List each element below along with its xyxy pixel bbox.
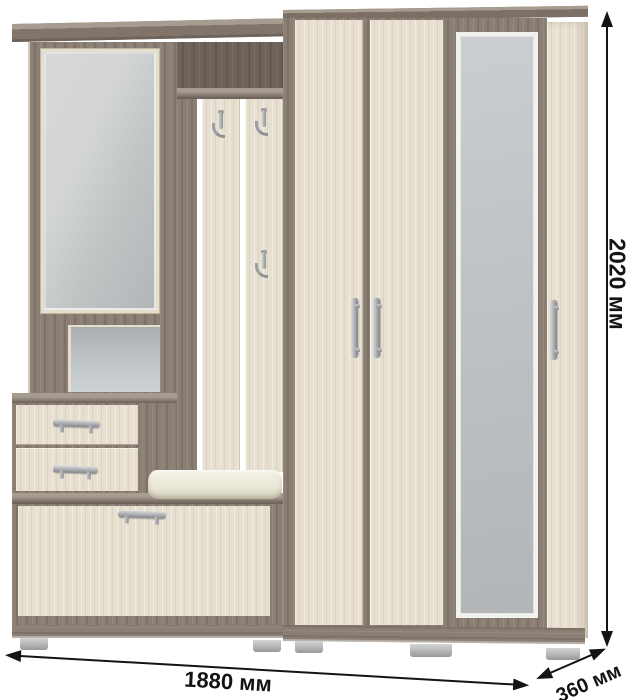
drawer-handle-top	[53, 419, 100, 428]
niche-mirror	[68, 325, 160, 392]
coat-rack-slat-left	[202, 99, 240, 472]
hook-curl	[255, 121, 268, 136]
cornice-shelf	[12, 18, 283, 42]
cabinet-foot-left	[20, 638, 48, 650]
hook-curl	[255, 263, 268, 278]
dim-height-label: 2020 мм	[604, 238, 630, 330]
wardrobe-foot-middle	[410, 644, 452, 657]
wardrobe-door-handle-right	[373, 298, 380, 358]
coat-rack-shelf	[177, 88, 283, 99]
cabinet-door	[18, 506, 270, 616]
coat-rack-back	[177, 42, 283, 88]
wardrobe-foot-left	[295, 641, 323, 653]
cabinet-base	[12, 625, 283, 638]
side-panel-handle	[550, 300, 557, 360]
drawer-handle-bottom	[53, 465, 98, 474]
coat-hook	[254, 108, 270, 140]
hook-curl	[212, 123, 225, 138]
dim-width-label: 1880 мм	[184, 667, 273, 698]
wardrobe-door-handle-left	[351, 298, 358, 358]
product-image: 2020 мм 1880 мм 360 мм	[0, 0, 630, 700]
cabinet-foot-right	[253, 640, 281, 652]
wardrobe-foot-right	[546, 648, 580, 660]
coat-rack-side-strip	[177, 99, 197, 472]
coat-hook	[254, 250, 270, 282]
mirror-door-glass	[460, 36, 534, 614]
wardrobe-door-right	[370, 20, 443, 625]
mirror-glass	[44, 52, 156, 310]
bench-cushion	[148, 470, 282, 499]
cabinet-handle	[118, 510, 166, 519]
coat-rack-slat-right	[245, 99, 283, 472]
wardrobe-base	[283, 625, 585, 644]
coat-hook	[211, 110, 227, 142]
